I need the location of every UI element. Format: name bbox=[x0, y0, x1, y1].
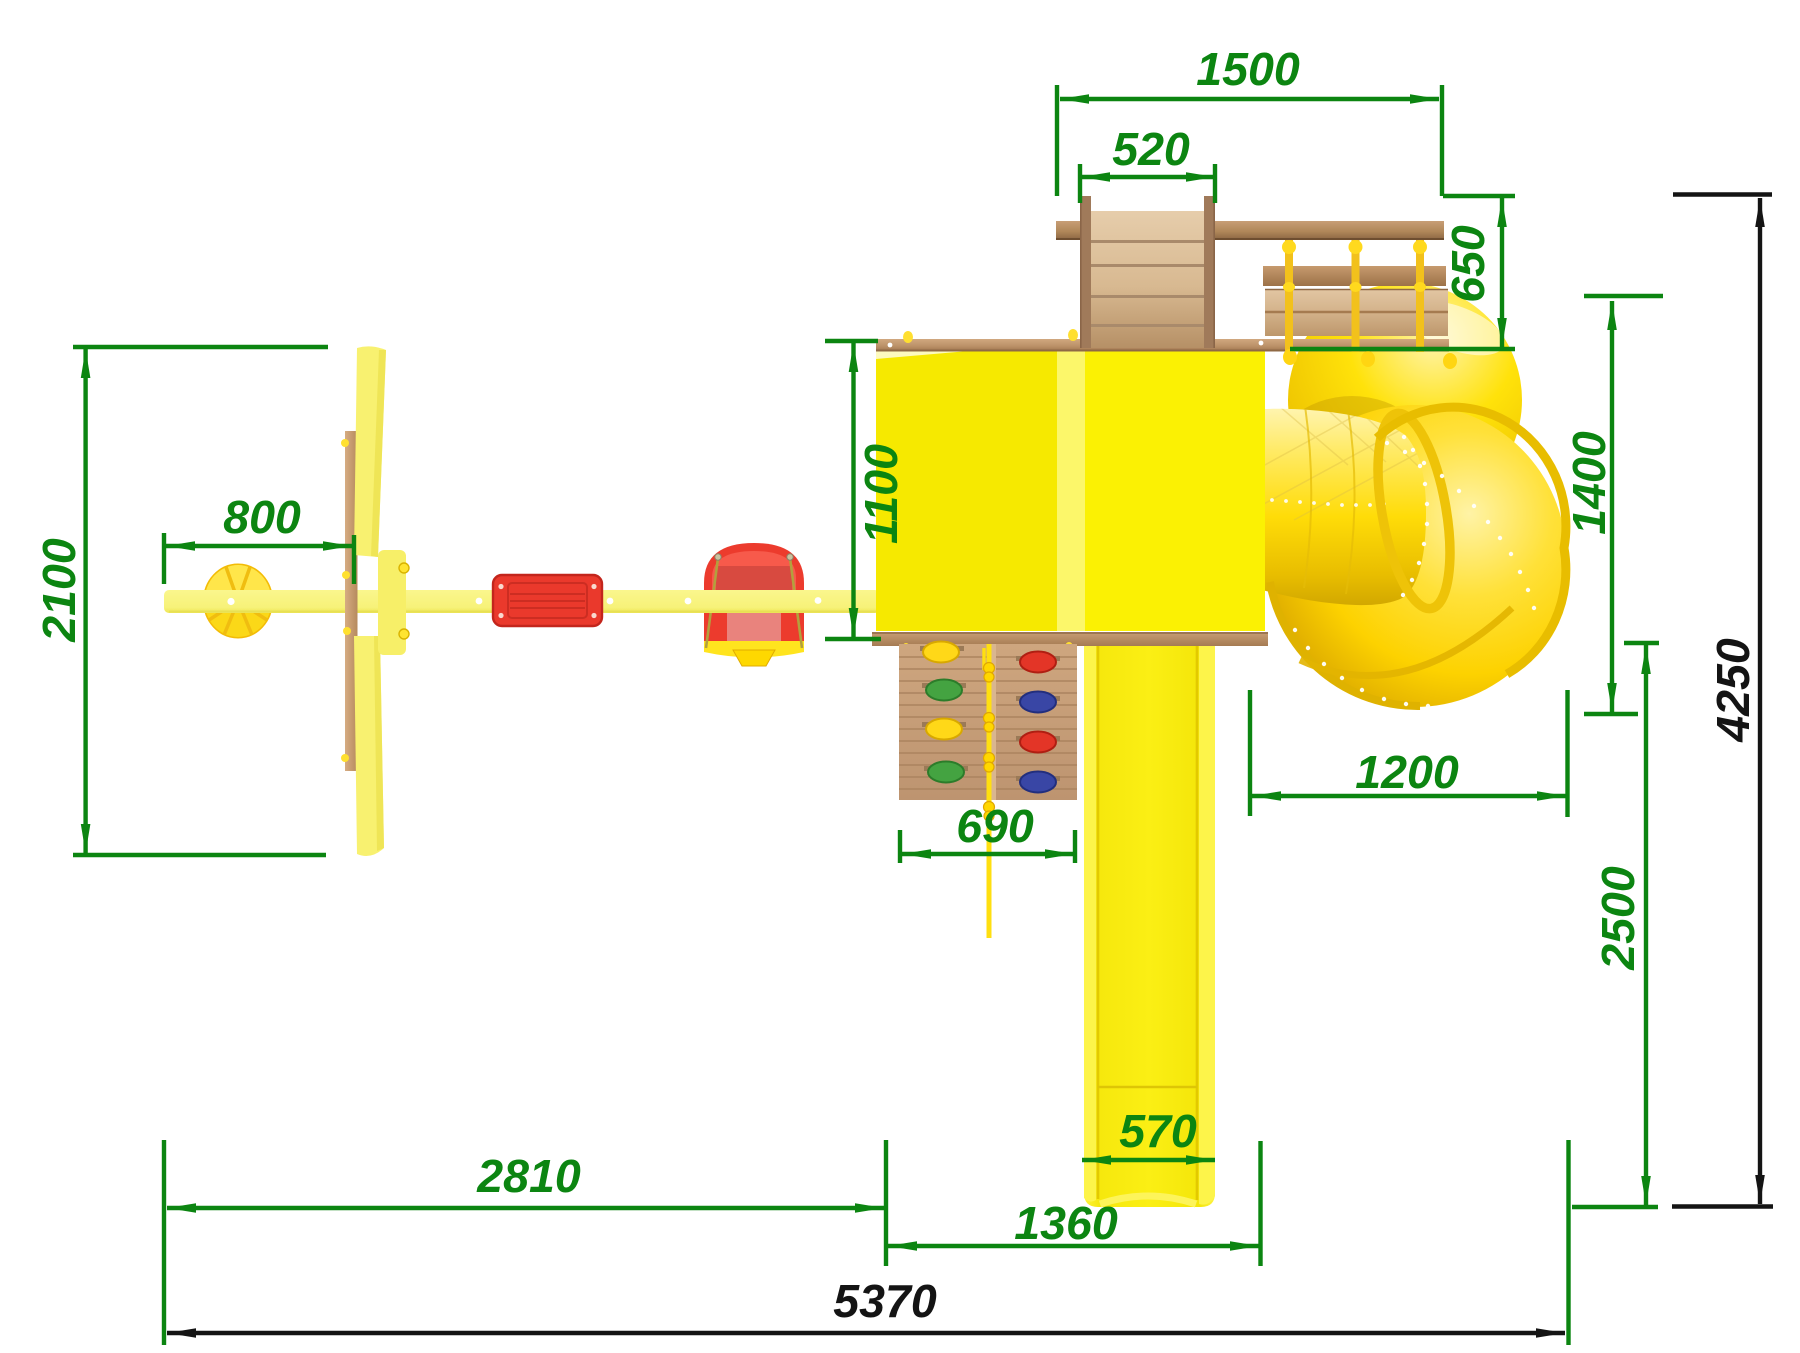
svg-text:1500: 1500 bbox=[1196, 43, 1300, 95]
svg-text:1400: 1400 bbox=[1563, 431, 1615, 535]
svg-text:570: 570 bbox=[1119, 1105, 1197, 1157]
svg-text:800: 800 bbox=[223, 491, 301, 543]
svg-text:520: 520 bbox=[1112, 123, 1190, 175]
svg-text:5370: 5370 bbox=[833, 1275, 937, 1327]
svg-text:4250: 4250 bbox=[1707, 638, 1759, 743]
svg-text:2500: 2500 bbox=[1592, 866, 1644, 971]
svg-text:650: 650 bbox=[1442, 225, 1494, 303]
svg-text:1100: 1100 bbox=[855, 444, 907, 544]
svg-text:2810: 2810 bbox=[476, 1150, 581, 1202]
svg-text:1200: 1200 bbox=[1355, 746, 1459, 798]
svg-text:690: 690 bbox=[956, 800, 1034, 852]
svg-text:1360: 1360 bbox=[1014, 1197, 1118, 1249]
svg-text:2100: 2100 bbox=[33, 538, 85, 643]
